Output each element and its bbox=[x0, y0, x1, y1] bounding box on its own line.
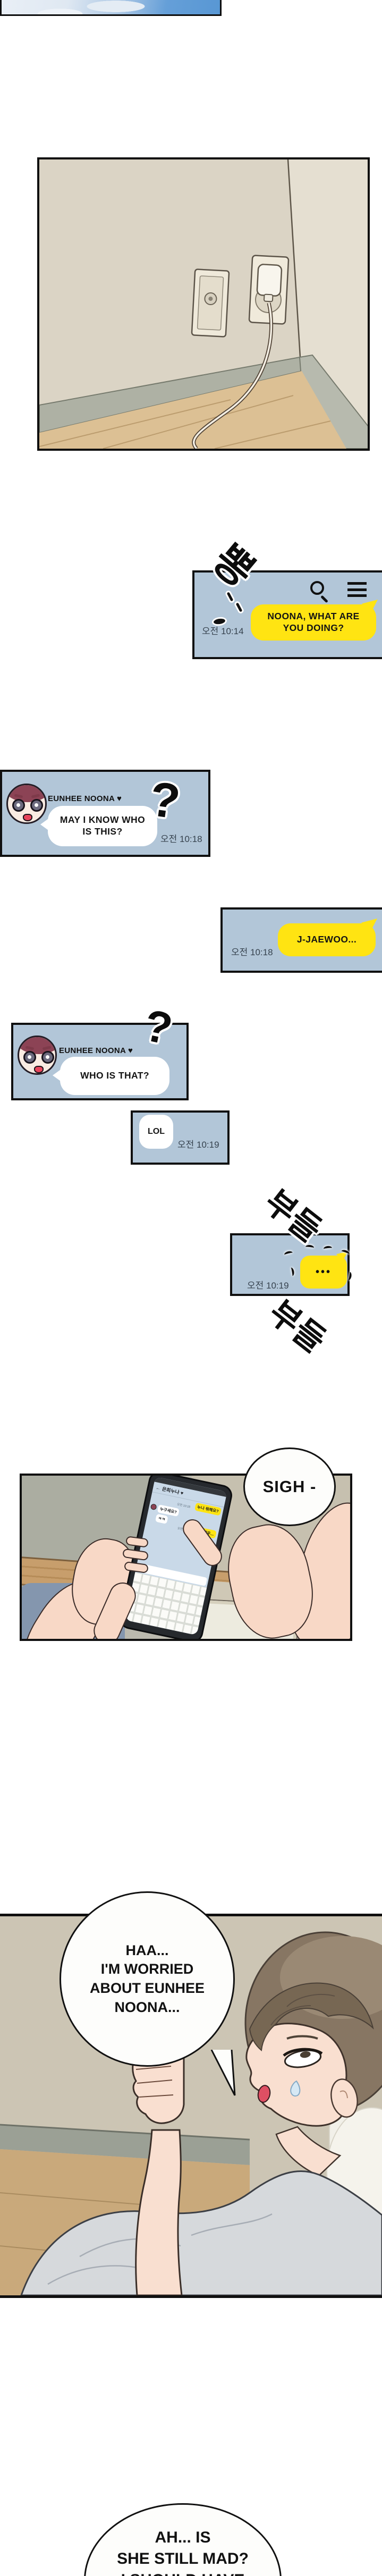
webtoon-page: 뽕 NOONA, WHAT ARE YOU DOING? 오전 10:14 EU… bbox=[0, 0, 382, 2576]
outro-balloon: AH... IS SHE STILL MAD? I SHOULD HAVE bbox=[84, 2503, 282, 2576]
sent-message-bubble: NOONA, WHAT ARE YOU DOING? bbox=[251, 604, 376, 641]
avatar-eunhee bbox=[6, 784, 47, 824]
avatar-eye bbox=[30, 799, 43, 812]
typing-dots: ••• bbox=[316, 1266, 332, 1278]
charger-plug bbox=[257, 264, 282, 296]
panel-room bbox=[37, 157, 370, 451]
avatar-eunhee bbox=[18, 1036, 57, 1075]
menu-icon bbox=[347, 582, 367, 597]
balloon-tail bbox=[208, 2050, 242, 2099]
speech-line: I'M WORRIED bbox=[101, 1960, 193, 1979]
typing-bubble: ••• bbox=[300, 1256, 347, 1289]
sigh-text: SIGH - bbox=[263, 1477, 317, 1496]
speech-line: SHE STILL MAD? bbox=[117, 2548, 249, 2570]
tremble-mark bbox=[288, 1267, 295, 1276]
avatar-mouth bbox=[34, 1066, 44, 1073]
tremble-mark bbox=[324, 1245, 333, 1251]
avatar-hair bbox=[6, 784, 47, 802]
received-message-bubble: WHO IS THAT? bbox=[60, 1057, 169, 1095]
timestamp: 오전 10:14 bbox=[202, 624, 244, 637]
message-line: LOL bbox=[148, 1127, 165, 1137]
sigh-balloon: SIGH - bbox=[243, 1447, 336, 1526]
timestamp: 오전 10:18 bbox=[160, 831, 202, 845]
tremble-mark bbox=[305, 1244, 315, 1250]
speech-line: HAA... bbox=[126, 1941, 169, 1960]
message-line: NOONA, WHAT ARE bbox=[267, 611, 359, 622]
message-line: J-JAEWOO... bbox=[297, 934, 356, 946]
sender-name: EUNHEE NOONA ♥ bbox=[59, 1046, 133, 1055]
speech-line: NOONA... bbox=[114, 1998, 180, 2017]
phone-avatar bbox=[150, 1503, 157, 1510]
panel-chat-5: LOL 오전 10:19 bbox=[131, 1110, 230, 1165]
message-line: YOU DOING? bbox=[283, 622, 344, 634]
avatar-eye bbox=[23, 1051, 36, 1064]
speech-line: I SHOULD HAVE bbox=[121, 2570, 245, 2576]
worry-balloon: HAA... I'M WORRIED ABOUT EUNHEE NOONA... bbox=[60, 1891, 235, 2067]
message-line: WHO IS THAT? bbox=[80, 1070, 149, 1082]
search-icon bbox=[310, 581, 324, 595]
received-message-bubble: MAY I KNOW WHO IS THIS? bbox=[48, 806, 157, 846]
tremble-mark bbox=[284, 1250, 293, 1257]
timestamp: 오전 10:19 bbox=[177, 1137, 219, 1150]
tv-outlet-plate bbox=[192, 269, 229, 336]
panel-chat-3: J-JAEWOO... 오전 10:18 bbox=[220, 907, 382, 973]
panel-sky-strip bbox=[0, 0, 222, 16]
message-line: IS THIS? bbox=[82, 826, 122, 838]
sender-name: EUNHEE NOONA ♥ bbox=[48, 794, 122, 803]
sent-message-bubble: J-JAEWOO... bbox=[278, 923, 376, 956]
avatar-eye bbox=[12, 799, 25, 812]
speech-line: AH... IS bbox=[155, 2527, 210, 2548]
avatar-eye bbox=[41, 1051, 54, 1064]
message-line: MAY I KNOW WHO bbox=[60, 814, 145, 826]
avatar-mouth bbox=[23, 814, 32, 821]
room-illustration bbox=[39, 159, 368, 449]
phone-received-bubble: ㅋㅋ bbox=[155, 1514, 168, 1524]
phone-timestamp: 오전 10:18 bbox=[177, 1502, 191, 1509]
timestamp: 오전 10:19 bbox=[247, 1278, 289, 1291]
speech-line: ABOUT EUNHEE bbox=[90, 1979, 205, 1998]
sfx-tremble: 부들 bbox=[260, 1286, 337, 1361]
timestamp: 오전 10:18 bbox=[231, 945, 273, 958]
received-message-bubble: LOL bbox=[139, 1115, 173, 1149]
back-icon: ← bbox=[155, 1485, 161, 1491]
